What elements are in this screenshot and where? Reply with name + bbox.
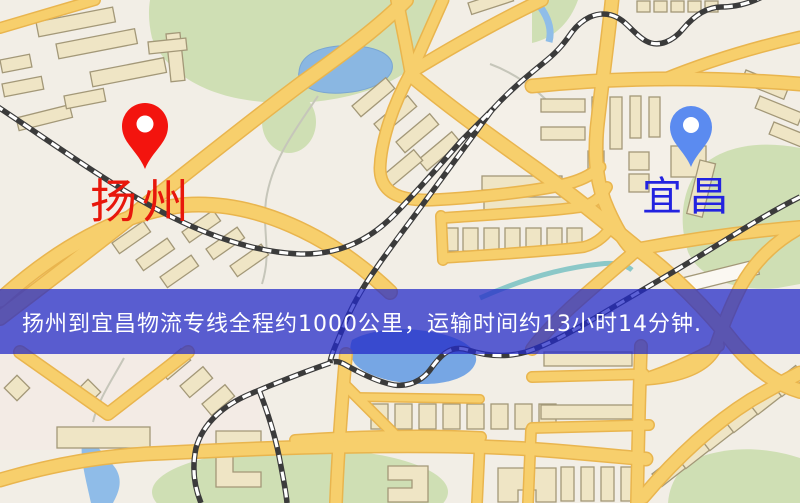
yichang-pin-hole: [683, 117, 699, 133]
yangzhou-pin-hole: [137, 116, 154, 133]
map-screenshot: 扬州 宜昌 扬州到宜昌物流专线全程约1000公里，运输时间约13小时14分钟.: [0, 0, 800, 503]
yichang-label: 宜昌: [642, 174, 736, 220]
yangzhou-label: 扬州: [90, 175, 194, 230]
route-info-text: 扬州到宜昌物流专线全程约1000公里，运输时间约13小时14分钟.: [22, 306, 702, 338]
route-info-banner: 扬州到宜昌物流专线全程约1000公里，运输时间约13小时14分钟.: [0, 289, 800, 354]
map-canvas: 扬州 宜昌: [0, 0, 800, 503]
